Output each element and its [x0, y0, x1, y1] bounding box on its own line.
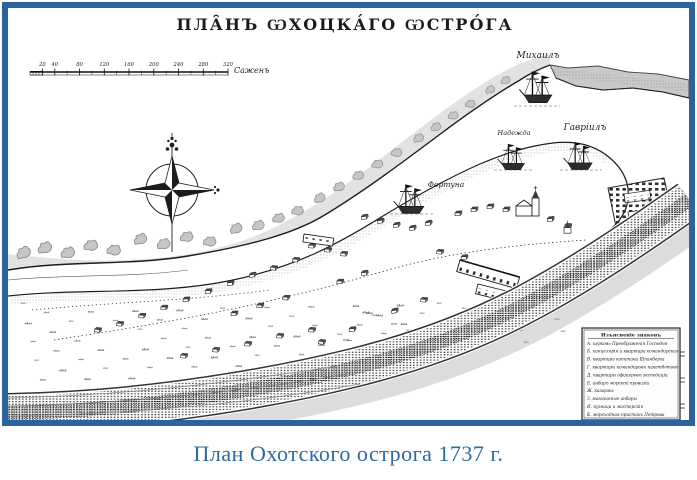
tree-icon — [203, 235, 217, 247]
ship-label-gavriil: Гавріилъ — [563, 123, 607, 133]
tuft-icon — [462, 307, 467, 308]
map-image: Михаилъ Надежда Гавріилъ Фортуна ПЛА̑НЪ … — [8, 8, 689, 420]
tuft-icon — [40, 379, 46, 381]
chapel — [564, 221, 571, 234]
tuft-icon — [309, 306, 315, 308]
house-icon — [547, 216, 554, 221]
tree-icon — [229, 222, 243, 234]
house-icon — [361, 214, 369, 220]
tuft-icon — [132, 310, 138, 312]
legend-box: Изъясненіе знаковъ А. церковь Преображен… — [582, 328, 685, 420]
tuft-icon — [337, 333, 342, 334]
forest-band — [8, 54, 550, 280]
house-icon — [180, 353, 187, 358]
tuft-icon — [420, 312, 425, 313]
tuft-icon — [264, 307, 269, 308]
tuft-icon — [54, 350, 60, 352]
tuft-icon — [246, 317, 253, 319]
tuft-icon — [211, 356, 218, 358]
tuft-icon — [161, 338, 166, 339]
tuft-icon — [230, 346, 235, 347]
ship-label-nadezhda: Надежда — [497, 129, 531, 137]
house-icon — [471, 207, 478, 212]
svg-text:А. церковь Преображенія Господ: А. церковь Преображенія Господня — [586, 341, 668, 346]
house-icon — [292, 257, 299, 262]
map-title: ПЛА̑НЪ ѠХОЦКА́ГО ѠСТРО́ГА — [177, 13, 514, 34]
church — [516, 186, 539, 216]
tuft-icon — [113, 320, 118, 321]
svg-text:80: 80 — [76, 62, 83, 68]
house-icon — [487, 204, 494, 209]
tree-icon — [372, 159, 384, 169]
tuft-icon — [25, 322, 32, 324]
house-icon — [308, 327, 315, 332]
house-icon — [318, 339, 325, 344]
tuft-icon — [34, 359, 39, 360]
svg-text:280: 280 — [197, 62, 209, 68]
tree-icons — [15, 76, 510, 259]
scale-unit-label: Саженъ — [234, 66, 269, 75]
tuft-icon — [44, 312, 49, 313]
ship-label-fortuna: Фортуна — [428, 180, 464, 189]
house-icon — [337, 279, 344, 284]
tree-icon — [157, 238, 170, 249]
legend-title: Изъясненіе знаковъ — [601, 333, 661, 339]
tuft-icon — [50, 331, 56, 333]
tuft-icon — [201, 318, 207, 320]
tuft-icon — [205, 337, 211, 339]
svg-text:Е. анбаръ морской провизіи: Е. анбаръ морской провизіи — [586, 380, 650, 385]
house-icon — [391, 308, 399, 314]
svg-text:320: 320 — [223, 62, 234, 68]
svg-text:40: 40 — [50, 62, 58, 68]
tree-icon — [37, 241, 52, 254]
tuft-icon — [69, 320, 74, 321]
tree-icon — [84, 239, 98, 251]
far-bank-north-east — [550, 65, 689, 98]
house-icon — [361, 270, 369, 276]
tuft-icon — [401, 323, 407, 325]
tuft-icon — [192, 366, 198, 368]
house-icon — [183, 297, 190, 302]
tree-icon — [252, 220, 265, 230]
tuft-icon — [103, 367, 108, 368]
svg-text:З. магазинные анбары: З. магазинные анбары — [587, 396, 638, 401]
tuft-icon — [372, 314, 377, 315]
tuft-icon — [255, 354, 260, 355]
tuft-icon — [353, 305, 359, 307]
tree-icon — [106, 243, 121, 256]
house-icon — [244, 341, 251, 346]
svg-text:Б. канцелярія и квартира коман: Б. канцелярія и квартира командирская — [586, 349, 679, 354]
tuft-icon — [437, 302, 442, 303]
tuft-icon — [167, 357, 173, 359]
house-icon — [276, 333, 283, 338]
tuft-icon — [343, 339, 349, 341]
house-icon — [455, 211, 462, 216]
tuft-icon — [157, 319, 163, 321]
barracks-buildings — [303, 234, 521, 304]
house-icon — [231, 311, 238, 316]
tuft-icon — [177, 309, 184, 311]
house-icon — [349, 327, 356, 332]
tuft-icon — [381, 333, 386, 334]
tuft-icon — [561, 330, 566, 331]
house-icon — [116, 321, 123, 326]
svg-text:Ж. казармы: Ж. казармы — [586, 388, 614, 393]
svg-text:В. квартира капитана Шпанберга: В. квартира капитана Шпанберга — [586, 357, 665, 362]
svg-text:120: 120 — [99, 62, 110, 68]
tuft-icon — [182, 328, 187, 329]
house-icon — [283, 295, 290, 300]
house-icon — [139, 313, 146, 318]
tuft-icon — [147, 367, 152, 368]
tuft-icon — [129, 377, 136, 379]
tree-icon — [61, 247, 75, 258]
svg-text:160: 160 — [124, 62, 135, 68]
scale-bar: 20 40 80 120 160 200 240 280 320 Саженъ — [30, 62, 269, 76]
tuft-icon — [294, 335, 301, 337]
tuft-icon — [274, 345, 280, 347]
tuft-icon — [312, 325, 317, 326]
house-icon — [461, 255, 468, 260]
tuft-icon — [357, 324, 363, 326]
tuft-icon — [60, 369, 67, 371]
tuft-icon — [376, 314, 383, 316]
tuft-icon — [299, 354, 304, 355]
image-caption: План Охотского острога 1737 г. — [0, 430, 697, 478]
tuft-icon — [88, 311, 94, 313]
tuft-icon — [75, 340, 81, 342]
house-icon — [425, 220, 433, 226]
house-icon — [340, 251, 347, 256]
tuft-icon — [289, 315, 294, 316]
tuft-icon — [142, 348, 149, 350]
tuft-icon — [249, 336, 255, 338]
tree-icon — [180, 231, 193, 242]
house-icon — [393, 222, 401, 228]
tree-icon — [272, 213, 284, 223]
legend-side-ticks — [680, 352, 685, 408]
house-icon — [257, 303, 264, 308]
house-icon — [409, 225, 417, 231]
tuft-icon — [84, 378, 90, 380]
tuft-icon — [123, 358, 129, 360]
map-frame: Михаилъ Надежда Гавріилъ Фортуна ПЛА̑НЪ … — [2, 2, 695, 426]
house-icon — [436, 249, 443, 254]
tuft-icon — [220, 307, 225, 308]
svg-text:Г. квартиры командировъ пакетб: Г. квартиры командировъ пакетботовъ — [586, 365, 679, 370]
scale-tick-labels: 20 40 80 120 160 200 240 280 320 — [38, 62, 234, 68]
svg-text:20: 20 — [38, 62, 46, 68]
tuft-icon — [30, 341, 35, 342]
tuft-icon — [268, 325, 273, 326]
tuft-icon — [138, 328, 143, 329]
svg-text:200: 200 — [148, 62, 160, 68]
svg-text:И. кузница и мастерскія: И. кузница и мастерскія — [586, 404, 643, 409]
house-icon — [212, 347, 219, 352]
tuft-icon — [98, 349, 104, 351]
tuft-icon — [397, 304, 404, 306]
tree-icon — [353, 171, 364, 179]
house-icon — [503, 207, 510, 212]
house-icon — [270, 265, 277, 270]
svg-text:240: 240 — [173, 62, 185, 68]
svg-text:Д. квартиры офицеровъ экспедиц: Д. квартиры офицеровъ экспедиціи — [586, 372, 668, 377]
ship-label-mikhail: Михаилъ — [516, 51, 560, 61]
tuft-icon — [78, 359, 83, 360]
tuft-icon — [391, 323, 397, 325]
tuft-icon — [186, 346, 191, 347]
house-icon — [420, 297, 427, 302]
tuft-icon — [236, 365, 242, 367]
house-icon — [161, 305, 168, 310]
svg-text:К. мореходная пристань Петрова: К. мореходная пристань Петрова — [586, 412, 665, 417]
tree-icon — [133, 233, 148, 245]
